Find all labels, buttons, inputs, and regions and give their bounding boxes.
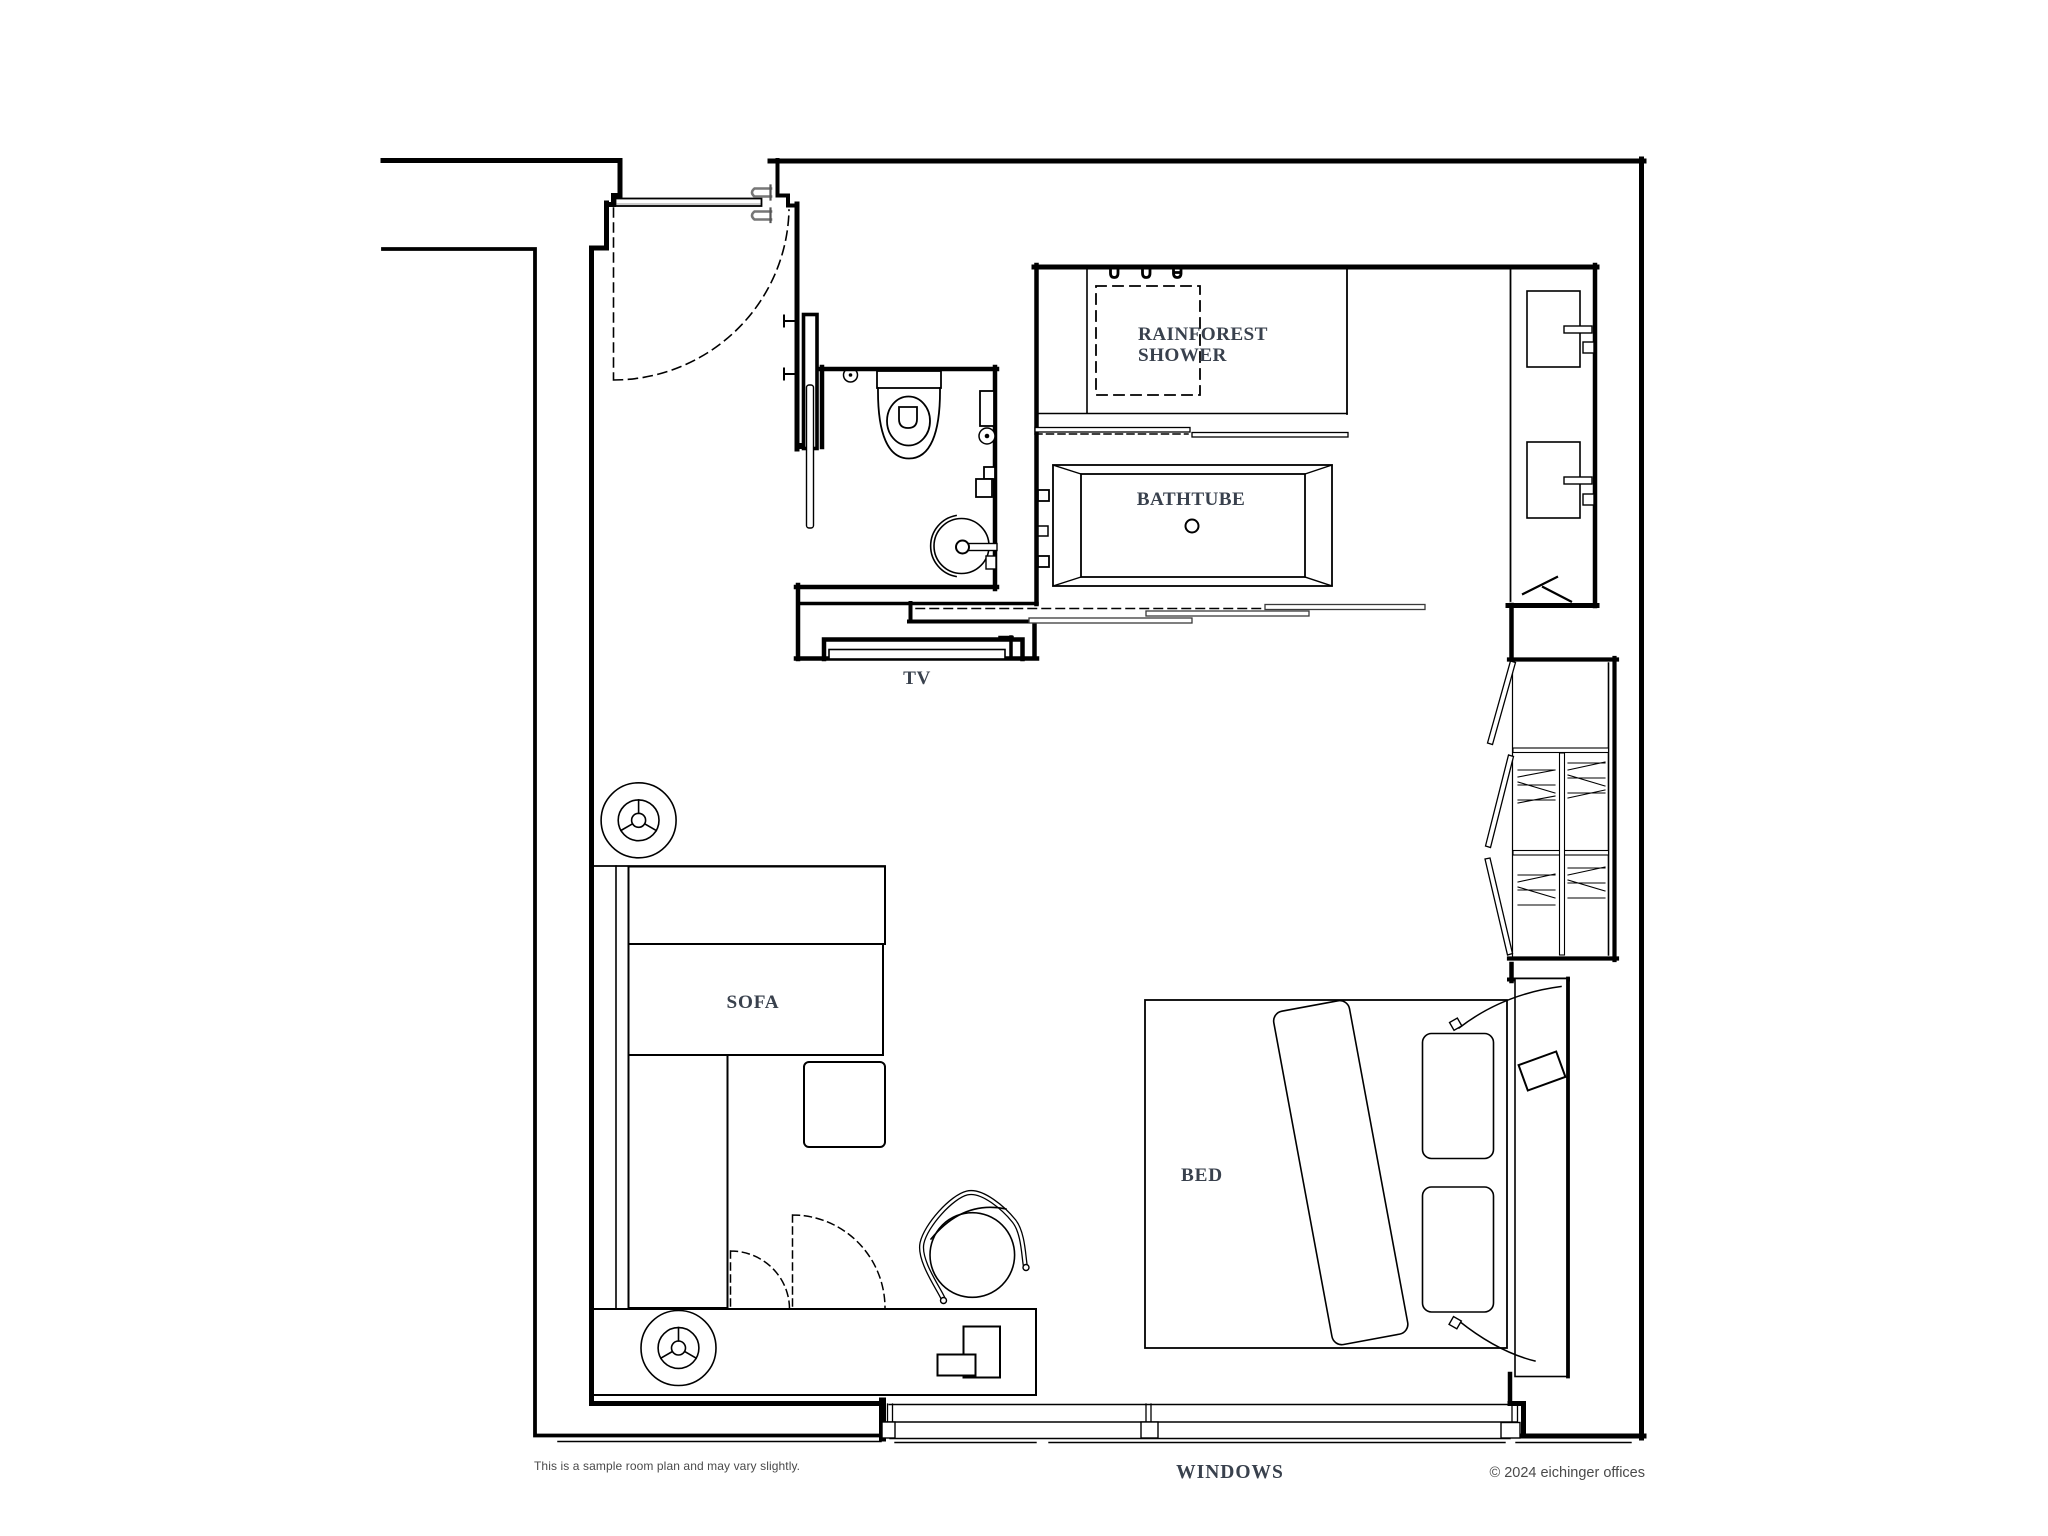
svg-text:WINDOWS: WINDOWS [1176,1462,1284,1483]
svg-text:BED: BED [1181,1165,1223,1186]
svg-text:SHOWER: SHOWER [1138,345,1228,366]
svg-text:TV: TV [903,668,931,689]
svg-text:This is a sample room plan and: This is a sample room plan and may vary … [534,1459,800,1473]
svg-text:RAINFOREST: RAINFOREST [1138,324,1268,345]
svg-text:BATHTUBE: BATHTUBE [1137,489,1245,510]
svg-text:SOFA: SOFA [727,992,780,1013]
svg-text:© 2024 eichinger offices: © 2024 eichinger offices [1489,1465,1645,1481]
